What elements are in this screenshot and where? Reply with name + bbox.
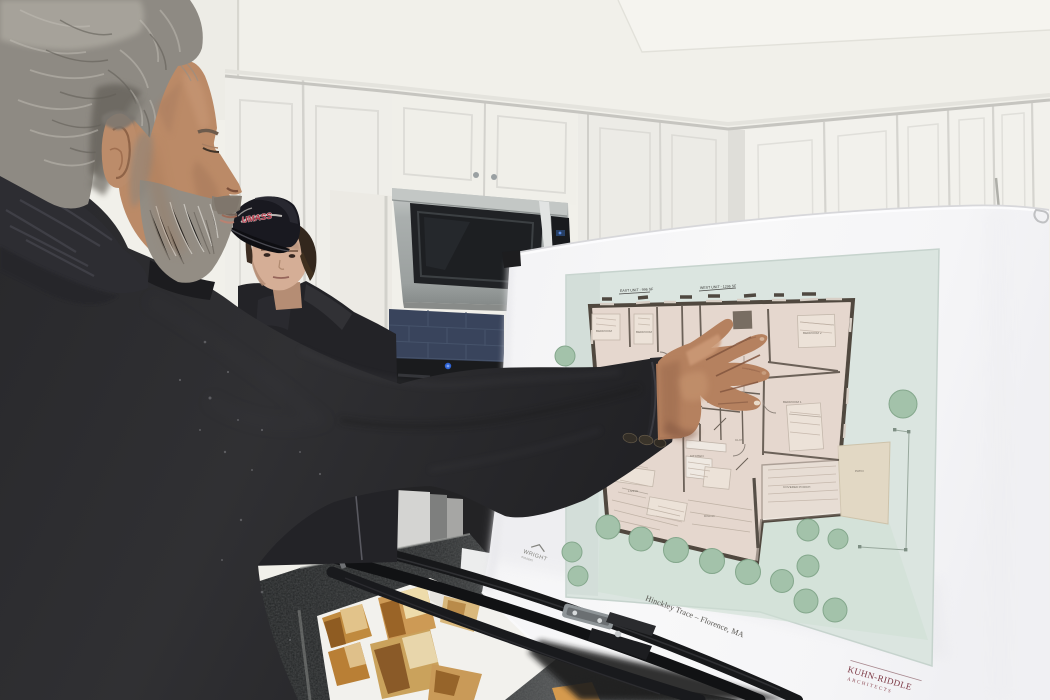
svg-text:BEDROOM: BEDROOM xyxy=(636,330,652,334)
svg-text:BEDROOM: BEDROOM xyxy=(596,329,612,333)
svg-text:CLOS.: CLOS. xyxy=(735,438,744,442)
svg-text:COVERED PORCH: COVERED PORCH xyxy=(783,485,810,489)
svg-text:LIVING: LIVING xyxy=(628,489,639,493)
svg-text:BEDROOM 1: BEDROOM 1 xyxy=(783,400,802,404)
svg-text:PATIO: PATIO xyxy=(855,469,864,473)
svg-text:KITCHEN: KITCHEN xyxy=(690,454,704,458)
